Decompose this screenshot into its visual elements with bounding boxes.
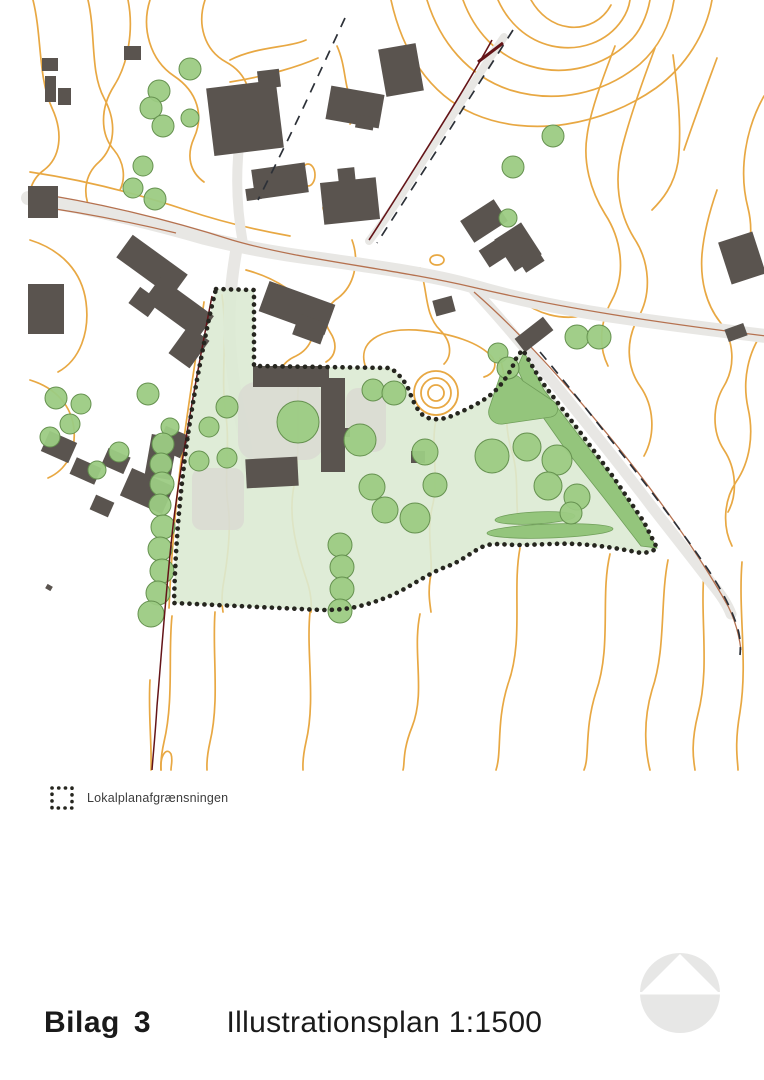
building xyxy=(45,584,53,591)
tree xyxy=(149,494,171,516)
contour-line xyxy=(693,572,704,770)
building xyxy=(28,284,64,334)
contour-line xyxy=(584,554,610,770)
contour-line xyxy=(149,680,151,770)
tree xyxy=(513,433,541,461)
tree xyxy=(60,414,80,434)
logo-divider xyxy=(640,992,720,995)
tree xyxy=(152,433,174,455)
tree xyxy=(144,188,166,210)
contour-line xyxy=(684,58,717,150)
tree xyxy=(359,474,385,500)
tree xyxy=(502,156,524,178)
tree xyxy=(587,325,611,349)
doc-title: Illustrationsplan 1:1500 xyxy=(227,1006,543,1040)
contour-loop xyxy=(430,255,444,265)
page: Lokalplanafgrænsningen Bilag 3 Illustrat… xyxy=(0,0,764,1080)
tree xyxy=(138,601,164,627)
contour-line xyxy=(427,0,674,96)
contour-line xyxy=(230,40,306,60)
boundary-legend-icon xyxy=(48,784,76,812)
contour-line xyxy=(86,0,113,212)
tree xyxy=(372,497,398,523)
building xyxy=(58,88,71,105)
contour-line xyxy=(303,612,311,770)
building xyxy=(45,76,56,102)
building xyxy=(28,186,58,218)
footer-caption: Bilag 3 Illustrationsplan 1:1500 xyxy=(44,1006,542,1040)
tree xyxy=(40,427,60,447)
contour-line xyxy=(496,548,520,770)
building xyxy=(378,43,424,97)
paving-area xyxy=(192,468,244,530)
tree xyxy=(362,379,384,401)
tree xyxy=(330,555,354,579)
tree xyxy=(328,533,352,557)
tree xyxy=(148,537,172,561)
doc-label: Bilag xyxy=(44,1006,120,1040)
building xyxy=(321,378,345,472)
tree xyxy=(150,559,174,583)
tree xyxy=(179,58,201,80)
contour-line xyxy=(29,0,59,212)
municipality-logo-icon xyxy=(638,950,722,1034)
contour-line xyxy=(737,562,744,770)
building xyxy=(253,366,329,387)
tree xyxy=(109,442,129,462)
building xyxy=(320,177,380,225)
tree xyxy=(123,178,143,198)
building xyxy=(42,58,58,71)
tree xyxy=(412,439,438,465)
contour-line xyxy=(391,0,712,126)
building xyxy=(206,80,284,156)
contour-line xyxy=(646,560,668,770)
tree xyxy=(181,109,199,127)
tree xyxy=(534,472,562,500)
illustration-map xyxy=(0,0,764,772)
building xyxy=(257,69,281,90)
building xyxy=(718,232,764,285)
tree xyxy=(560,502,582,524)
contour-line xyxy=(652,55,680,210)
building xyxy=(116,235,187,298)
building xyxy=(245,457,298,489)
contour-line xyxy=(618,48,655,456)
building xyxy=(124,46,141,60)
tree xyxy=(45,387,67,409)
tree xyxy=(88,461,106,479)
building xyxy=(337,167,355,183)
mound-ring xyxy=(428,385,444,401)
tree xyxy=(217,448,237,468)
tree xyxy=(216,396,238,418)
building xyxy=(432,296,455,317)
tree xyxy=(189,451,209,471)
tree xyxy=(475,439,509,473)
tree xyxy=(150,472,174,496)
contour-line xyxy=(207,612,215,770)
contour-line xyxy=(403,614,420,770)
contour-line xyxy=(104,0,131,190)
contour-line xyxy=(531,0,611,27)
building xyxy=(325,86,384,129)
tree xyxy=(542,125,564,147)
legend: Lokalplanafgrænsningen xyxy=(48,784,228,812)
tree xyxy=(400,503,430,533)
tree xyxy=(542,445,572,475)
tree xyxy=(71,394,91,414)
tree xyxy=(137,383,159,405)
tree xyxy=(565,325,589,349)
tree xyxy=(152,115,174,137)
tree xyxy=(330,577,354,601)
contour-line xyxy=(702,190,735,512)
tree xyxy=(344,424,376,456)
tree xyxy=(382,381,406,405)
tree xyxy=(133,156,153,176)
doc-number: 3 xyxy=(134,1006,151,1040)
tree xyxy=(499,209,517,227)
building xyxy=(90,495,115,518)
burial-mound-icon xyxy=(414,371,458,415)
tree xyxy=(423,473,447,497)
tree xyxy=(199,417,219,437)
tree xyxy=(277,401,319,443)
legend-label: Lokalplanafgrænsningen xyxy=(87,791,228,805)
mound-ring xyxy=(421,378,451,408)
